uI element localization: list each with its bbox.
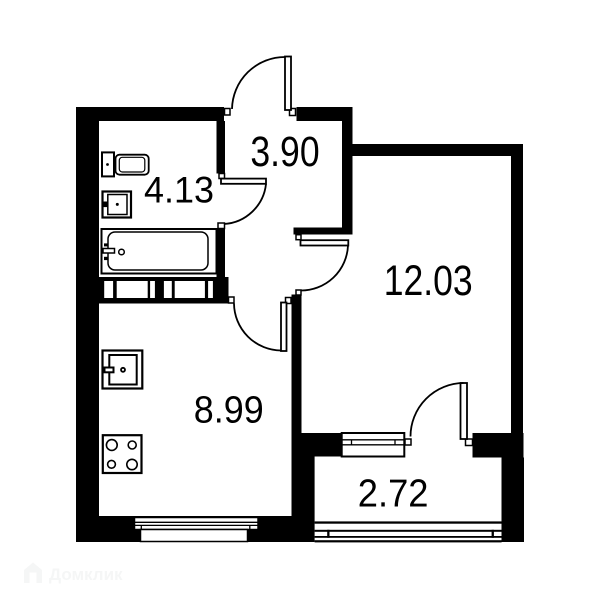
svg-text:2.72: 2.72 <box>358 473 429 516</box>
svg-text:4.13: 4.13 <box>144 169 214 211</box>
svg-text:3.90: 3.90 <box>250 128 319 176</box>
svg-text:8.99: 8.99 <box>194 390 264 432</box>
svg-text:Домклик: Домклик <box>49 565 123 584</box>
svg-text:12.03: 12.03 <box>384 258 473 305</box>
